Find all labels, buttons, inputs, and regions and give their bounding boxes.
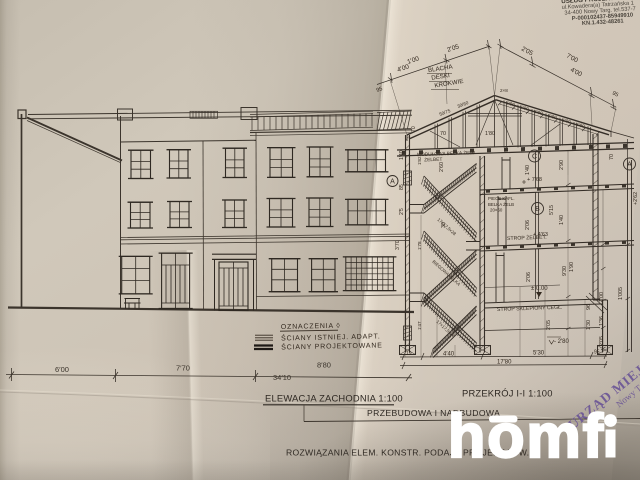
svg-text:95: 95 <box>594 350 600 356</box>
svg-text:8′80: 8′80 <box>317 361 331 370</box>
svg-text:1′47: 1′47 <box>417 321 422 330</box>
svg-text:+2′62: +2′62 <box>633 192 639 205</box>
svg-text:1′80: 1′80 <box>485 131 495 137</box>
svg-text:19: 19 <box>406 351 412 357</box>
svg-text:30: 30 <box>441 222 447 228</box>
svg-text:96: 96 <box>586 304 592 310</box>
svg-text:34′10: 34′10 <box>273 373 291 382</box>
svg-text:+ 4′63: + 4′63 <box>533 232 548 238</box>
svg-text:20×60: 20×60 <box>490 208 503 213</box>
svg-text:BELKA ŻELB: BELKA ŻELB <box>488 202 514 207</box>
svg-text:1′40: 1′40 <box>399 150 405 160</box>
svg-text:C: C <box>532 154 537 161</box>
svg-text:2′06: 2′06 <box>526 272 532 282</box>
svg-text:± 0.00: ± 0.00 <box>531 286 548 292</box>
svg-text:PIECE KAFL.: PIECE KAFL. <box>488 196 515 201</box>
svg-text:1′40: 1′40 <box>525 165 531 175</box>
svg-text:1′30: 1′30 <box>586 320 592 330</box>
svg-text:70: 70 <box>411 126 417 132</box>
svg-text:OZNACZENIA ◊: OZNACZENIA ◊ <box>281 323 341 331</box>
svg-text:A: A <box>627 162 632 169</box>
svg-text:1′78: 1′78 <box>417 241 422 250</box>
svg-text:85: 85 <box>399 184 405 190</box>
svg-text:ELEWACJA ZACHODNIA 1:100: ELEWACJA ZACHODNIA 1:100 <box>265 393 403 404</box>
svg-text:5′30: 5′30 <box>533 351 545 357</box>
svg-text:B: B <box>535 206 540 213</box>
svg-text:homf: homf <box>448 402 605 470</box>
svg-text:70: 70 <box>609 154 615 160</box>
svg-text:1′36: 1′36 <box>599 316 605 326</box>
svg-text:6′00: 6′00 <box>55 365 69 374</box>
svg-text:5′15: 5′15 <box>549 205 555 215</box>
svg-text:7′70: 7′70 <box>176 364 190 373</box>
svg-text:+ 7′68: + 7′68 <box>527 177 542 183</box>
svg-text:PRZEKRÓJ I-I 1:100: PRZEKRÓJ I-I 1:100 <box>462 388 553 399</box>
svg-text:1′90: 1′90 <box>569 262 575 272</box>
svg-text:2×8: 2×8 <box>500 88 508 93</box>
svg-text:A: A <box>390 179 395 186</box>
svg-text:70: 70 <box>440 131 446 137</box>
svg-text:9′30: 9′30 <box>562 266 568 276</box>
svg-text:17′80: 17′80 <box>497 360 512 366</box>
svg-text:2′06: 2′06 <box>525 220 531 230</box>
svg-text:1′00: 1′00 <box>599 292 605 302</box>
svg-text:2′5: 2′5 <box>399 208 405 215</box>
svg-text:2′05: 2′05 <box>546 320 552 330</box>
svg-text:1′40: 1′40 <box>559 215 565 225</box>
svg-text:1′005: 1′005 <box>618 287 624 300</box>
svg-text:- 2′80: - 2′80 <box>554 339 569 345</box>
svg-text:2′90: 2′90 <box>559 160 565 170</box>
svg-text:3′70: 3′70 <box>395 240 401 250</box>
svg-text:1′82: 1′82 <box>417 156 422 165</box>
svg-text:2′05: 2′05 <box>599 336 605 346</box>
svg-text:2′60: 2′60 <box>439 162 445 172</box>
svg-text:4′40: 4′40 <box>443 352 455 358</box>
